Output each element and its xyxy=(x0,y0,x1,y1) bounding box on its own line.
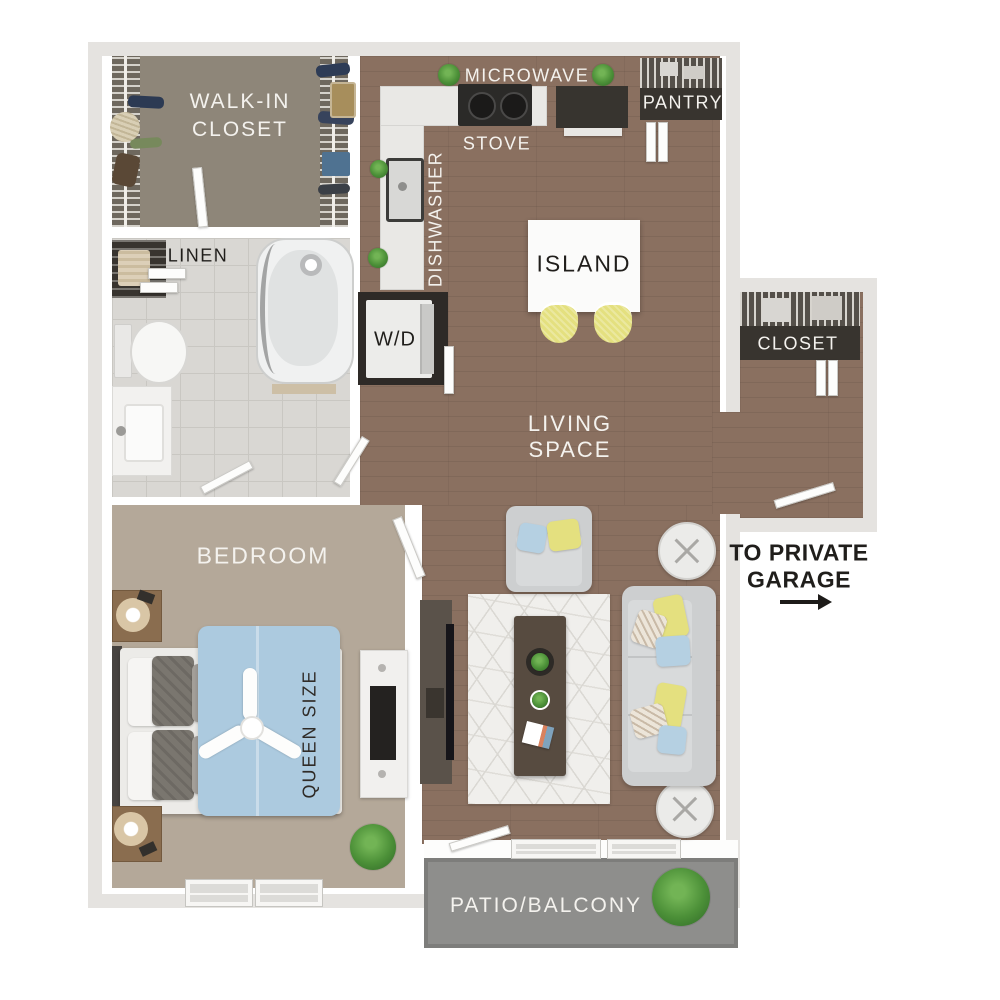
stove-label: STOVE xyxy=(463,134,531,155)
patio-window-1 xyxy=(512,840,600,858)
storage-box-blue xyxy=(322,152,350,176)
laundry-door xyxy=(444,346,454,394)
dresser-tv xyxy=(370,686,396,760)
dresser-knob xyxy=(378,664,386,672)
armchair-pillow-blue xyxy=(516,522,548,554)
entry-closet-label: CLOSET xyxy=(757,334,838,355)
pantry-shelf xyxy=(640,58,722,88)
sofa-pillow-blue-1 xyxy=(655,635,691,667)
island-stool-1 xyxy=(540,302,578,343)
counter-plant-4 xyxy=(368,248,388,268)
clothes-item xyxy=(318,183,350,195)
lamp-top xyxy=(116,598,150,632)
shower-curtain xyxy=(260,244,291,374)
microwave-label: MICROWAVE xyxy=(465,66,590,87)
linen-door-panel-2 xyxy=(140,282,178,293)
linen-basket xyxy=(118,250,150,286)
washer-dryer-label: W/D xyxy=(374,329,416,352)
tv-screen xyxy=(446,624,454,760)
entry-opening xyxy=(712,412,746,514)
island-label: ISLAND xyxy=(536,251,631,278)
side-table-top xyxy=(658,522,716,580)
closet-box-2 xyxy=(812,296,842,320)
lamp-bottom xyxy=(114,812,148,846)
pantry-label: PANTRY xyxy=(643,93,723,114)
sofa-pillow-blue-2 xyxy=(657,725,688,756)
sink-faucet xyxy=(116,426,126,436)
dresser-knob xyxy=(378,770,386,778)
microwave-shelf xyxy=(564,128,622,136)
storage-box-gold xyxy=(330,82,356,118)
side-table-bottom xyxy=(656,780,714,838)
armchair-pillow-yellow xyxy=(546,518,582,552)
living-space-label-line2: SPACE xyxy=(529,437,612,463)
patio-plant xyxy=(652,868,710,926)
console-media-box xyxy=(426,688,444,718)
bed-pillow-gray-1 xyxy=(152,656,194,726)
patio-label: PATIO/BALCONY xyxy=(450,894,642,918)
bedroom-plant xyxy=(350,824,396,870)
bedroom-label: BEDROOM xyxy=(197,543,330,570)
garage-arrow-head xyxy=(818,594,832,610)
bedroom-window-1 xyxy=(186,880,252,906)
pantry-item xyxy=(660,62,678,76)
garage-label-line2: GARAGE xyxy=(747,567,851,594)
closet-box-1 xyxy=(762,298,790,322)
counter-plant-1 xyxy=(438,64,460,86)
queen-size-label: QUEEN SIZE xyxy=(300,669,321,798)
washer-door-face xyxy=(420,304,434,374)
clothes-item xyxy=(128,95,165,109)
stove-burner-right xyxy=(500,92,528,120)
entry-closet-door xyxy=(816,360,826,396)
counter-plant-3 xyxy=(370,160,388,178)
bowl-greenery xyxy=(531,653,549,671)
dishwasher-label: DISHWASHER xyxy=(426,151,447,287)
toilet-bowl xyxy=(130,320,188,384)
bed-pillow-gray-2 xyxy=(152,730,194,800)
walk-in-closet-label-line2: CLOSET xyxy=(192,118,288,142)
pantry-door xyxy=(646,122,656,162)
garage-label-line1: TO PRIVATE xyxy=(729,540,868,567)
counter-plant-2 xyxy=(592,64,614,86)
bath-mat xyxy=(272,384,336,394)
table-plant xyxy=(532,692,548,708)
entry-closet-door-jamb xyxy=(828,360,838,396)
clothes-item xyxy=(110,112,140,142)
tub-faucet xyxy=(300,254,322,276)
linen-label: LINEN xyxy=(168,246,229,267)
sink-drain xyxy=(398,182,407,191)
linen-door-panel-1 xyxy=(148,268,186,279)
walk-in-closet-label-line1: WALK-IN xyxy=(190,90,291,114)
bathroom-sink xyxy=(124,404,164,462)
entry-closet-shelf xyxy=(740,292,860,326)
pantry-item xyxy=(684,66,704,79)
floor-plan: PATIO/BALCONY WALK-IN CLOSET LINEN xyxy=(0,0,1000,1000)
garage-arrow-icon xyxy=(780,600,820,604)
island-stool-2 xyxy=(594,302,632,343)
pantry-door-jamb xyxy=(658,122,668,162)
microwave-cabinet xyxy=(556,86,628,128)
stove-burner-left xyxy=(468,92,496,120)
bedroom-window-2 xyxy=(256,880,322,906)
living-space-label-line1: LIVING xyxy=(528,411,612,437)
patio-window-2 xyxy=(608,840,680,858)
